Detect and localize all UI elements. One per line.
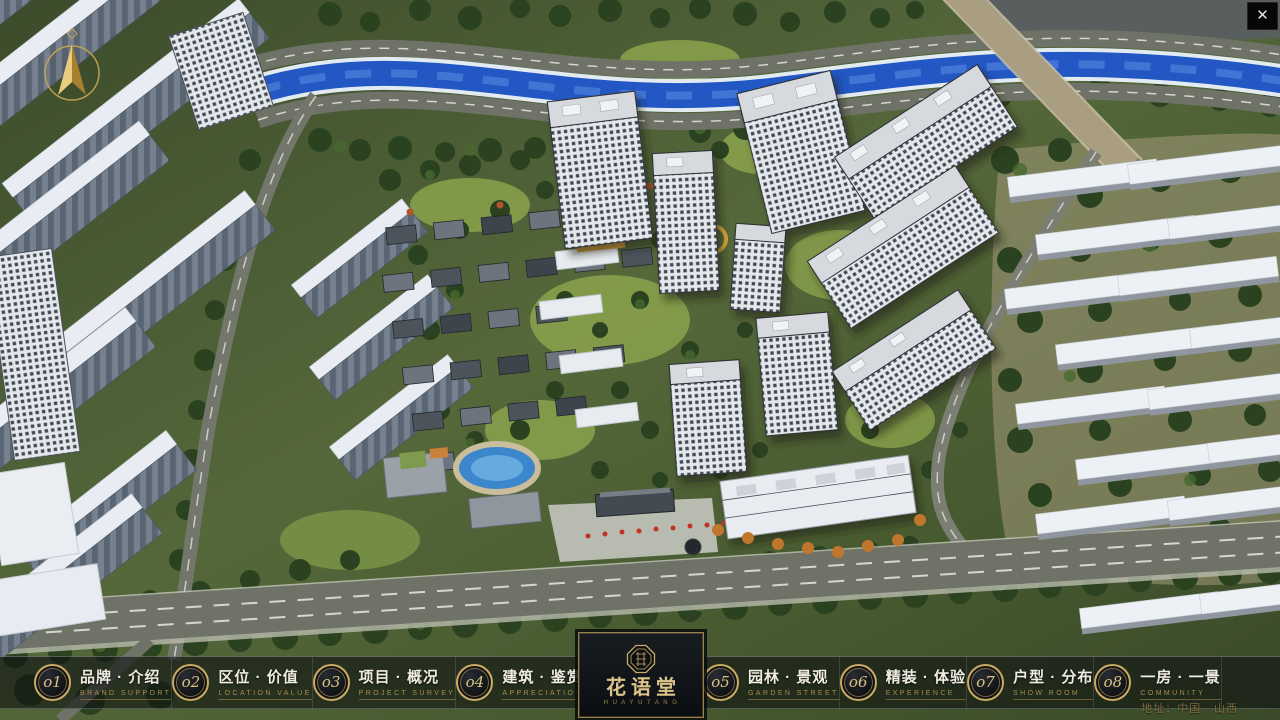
- nav-number-badge: o7: [967, 664, 1004, 701]
- nav-number-badge: o3: [313, 664, 350, 701]
- logo-subtitle: H U A Y U T A N G: [604, 700, 679, 706]
- nav-item-architecture[interactable]: o4 建筑 · 鉴赏APPRECIATION: [455, 657, 582, 708]
- nav-number-badge: o4: [456, 664, 493, 701]
- close-button[interactable]: ✕: [1247, 2, 1278, 30]
- nav-number-badge: o2: [172, 664, 209, 701]
- nav-number-badge: o5: [702, 664, 739, 701]
- nav-item-garden-landscape[interactable]: o5 园林 · 景观GARDEN STREET: [702, 657, 839, 708]
- aerial-site-render: [0, 0, 1280, 720]
- nav-subtitle: EXPERIENCE: [886, 690, 966, 700]
- nav-number-badge: o8: [1094, 664, 1131, 701]
- nav-label: 户型 · 分布: [1013, 666, 1093, 687]
- nav-label: 精装 · 体验: [886, 666, 966, 687]
- nav-item-location-value[interactable]: o2 区位 · 价值LOCATION VALUE: [171, 657, 311, 708]
- nav-item-project-survey[interactable]: o3 项目 · 概况PROJECT SURVEY: [312, 657, 456, 708]
- nav-label: 项目 · 概况: [359, 666, 439, 687]
- nav-subtitle: GARDEN STREET: [748, 690, 839, 700]
- nav-subtitle: APPRECIATION: [502, 690, 582, 700]
- nav-number-badge: o1: [34, 664, 71, 701]
- nav-label: 区位 · 价值: [218, 666, 298, 687]
- nav-label: 园林 · 景观: [748, 666, 828, 687]
- nav-subtitle: COMMUNITY: [1140, 690, 1220, 700]
- nav-group-right: o5 园林 · 景观GARDEN STREET o6 精装 · 体验EXPERI…: [702, 657, 1170, 708]
- seal-emblem-icon: [626, 644, 656, 674]
- nav-group-left: o1 品牌 · 介绍BRAND SUPPORT o2 区位 · 价值LOCATI…: [34, 657, 576, 708]
- close-icon: ✕: [1256, 7, 1269, 24]
- project-logo-panel[interactable]: 花语堂 H U A Y U T A N G: [578, 632, 704, 718]
- nav-subtitle: BRAND SUPPORT: [80, 690, 171, 700]
- nav-number-badge: o6: [840, 664, 877, 701]
- address-text: 地址：中国 · 山西: [1141, 700, 1238, 716]
- nav-label: 品牌 · 介绍: [80, 666, 160, 687]
- nav-item-unit-distribution[interactable]: o7 户型 · 分布SHOW ROOM: [966, 657, 1093, 708]
- nav-label: 建筑 · 鉴赏: [502, 666, 582, 687]
- sales-presentation-screen: ✕ o1 品牌 · 介绍BRAND SUPPORT o2 区位 · 价值LOCA…: [0, 0, 1280, 720]
- nav-subtitle: PROJECT SURVEY: [359, 690, 456, 700]
- nav-label: 一房 · 一景: [1140, 666, 1220, 687]
- nav-item-finish-experience[interactable]: o6 精装 · 体验EXPERIENCE: [839, 657, 966, 708]
- nav-subtitle: SHOW ROOM: [1013, 690, 1093, 700]
- nav-item-brand-intro[interactable]: o1 品牌 · 介绍BRAND SUPPORT: [34, 657, 171, 708]
- logo-title: 花语堂: [601, 677, 681, 697]
- nav-subtitle: LOCATION VALUE: [218, 690, 311, 700]
